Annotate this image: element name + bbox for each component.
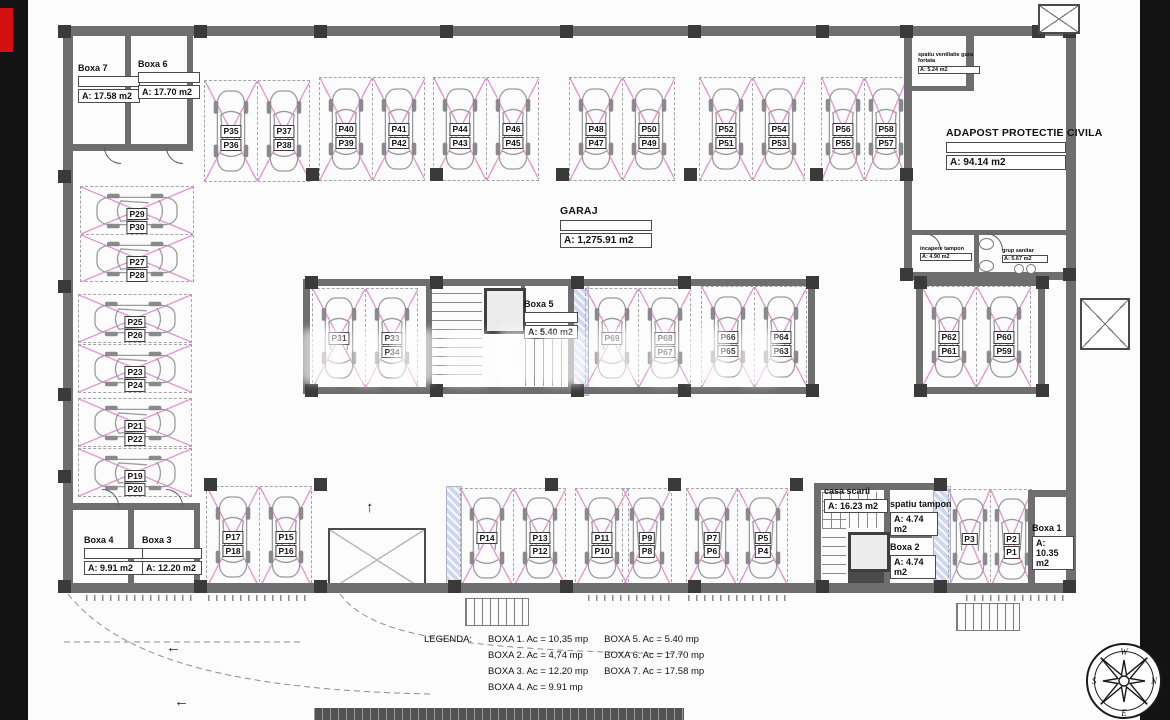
stall-label: P66P65 <box>717 331 738 357</box>
column <box>314 25 327 38</box>
column <box>678 276 691 289</box>
parking-stall-p7-p6: P7P6 <box>687 489 737 586</box>
door-arc <box>166 147 183 164</box>
stall-number: P9 <box>639 532 655 545</box>
parking-stall-p15-p16: P15P16 <box>259 487 312 587</box>
parking-stall-group: P19P20 <box>78 448 192 497</box>
stall-number: P53 <box>768 137 789 150</box>
parking-stall-p52-p51: P52P51 <box>700 78 752 180</box>
stall-number: P38 <box>273 139 294 152</box>
column <box>900 168 913 181</box>
stall-label: P33P34 <box>381 332 402 358</box>
direction-arrow-icon: ← <box>166 640 181 655</box>
wall <box>303 387 815 394</box>
column <box>914 276 927 289</box>
stall-label: P27P28 <box>126 256 147 282</box>
stall-number: P54 <box>768 123 789 136</box>
parking-stall-p44-p43: P44P43 <box>434 78 486 180</box>
stall-number: P69 <box>601 332 622 345</box>
stall-number: P30 <box>126 221 147 234</box>
stall-label: P14 <box>476 532 497 545</box>
column <box>58 25 71 38</box>
room-title: incapere tampon <box>920 246 972 252</box>
legend-item: BOXA 2. Ac = 4,74 mp <box>488 650 588 661</box>
stall-number: P59 <box>993 345 1014 358</box>
stall-number: P2 <box>1003 533 1019 546</box>
stall-number: P45 <box>502 137 523 150</box>
column <box>1063 580 1076 593</box>
parking-stall-p50-p49: P50P49 <box>622 78 675 180</box>
legend: LEGENDA: BOXA 1. Ac = 10,35 mpBOXA 2. Ac… <box>424 634 704 698</box>
room-label-boxa-3: Boxa 3A: 12.20 m2 <box>142 536 202 575</box>
parking-stall-p69: P69 <box>586 289 638 387</box>
stall-number: P3 <box>961 533 977 546</box>
parking-stall-p60-p59: P60P59 <box>976 287 1031 387</box>
parking-stall-p46-p45: P46P45 <box>486 78 539 180</box>
stall-number: P40 <box>335 123 356 136</box>
stall-label: P3 <box>961 533 977 546</box>
stall-label: P11P10 <box>591 532 612 558</box>
stall-label: P62P61 <box>938 331 959 357</box>
room-title: Boxa 6 <box>138 60 200 70</box>
stall-label: P46P45 <box>502 123 523 149</box>
column <box>684 168 697 181</box>
column <box>806 276 819 289</box>
stall-number: P56 <box>832 123 853 136</box>
parking-stall-p64-p63: P64P63 <box>754 287 807 387</box>
stall-number: P57 <box>875 137 896 150</box>
column <box>440 25 453 38</box>
column <box>58 388 71 401</box>
parking-stall-group: P31P33P34 <box>312 288 418 388</box>
stair-treads <box>525 338 567 386</box>
column <box>571 384 584 397</box>
name-box <box>946 142 1066 153</box>
floorplan-screenshot: ↑←←P35P36P37P38P40P39P41P42P44P43P46P45P… <box>0 0 1170 720</box>
column <box>314 478 327 491</box>
parking-stall-p23-p24: P23P24 <box>79 345 191 392</box>
stall-number: P46 <box>502 123 523 136</box>
parking-stall-group: P44P43P46P45 <box>433 77 539 181</box>
compass-letter-bottom: E <box>1120 708 1127 718</box>
name-box <box>78 76 140 87</box>
hatch-marks <box>688 595 788 601</box>
room-area: A: 12.20 m2 <box>142 561 202 575</box>
elevator <box>848 532 890 572</box>
wall <box>974 232 979 276</box>
stall-number: P16 <box>275 545 296 558</box>
room-label-garaj: GARAJA: 1,275.91 m2 <box>560 206 652 248</box>
room-title: Boxa 7 <box>78 64 140 74</box>
room-title: Boxa 3 <box>142 536 202 546</box>
stall-number: P6 <box>704 545 720 558</box>
stall-number: P22 <box>124 433 145 446</box>
stall-number: P62 <box>938 331 959 344</box>
column <box>688 25 701 38</box>
stall-label: P56P55 <box>832 123 853 149</box>
room-title: spatiu ventilatie gura fortata <box>918 52 980 65</box>
stall-label: P9P8 <box>639 532 655 558</box>
stall-number: P44 <box>449 123 470 136</box>
column <box>934 478 947 491</box>
parking-stall-p66-p65: P66P65 <box>702 287 754 387</box>
direction-arrow-icon: ↑ <box>366 500 374 515</box>
legend-item: BOXA 6. Ac = 17.70 mp <box>604 650 704 661</box>
column <box>448 580 461 593</box>
toilet-icon <box>1026 264 1036 274</box>
legend-title: LEGENDA: <box>424 634 472 698</box>
parking-stall-p29-p30: P29P30 <box>81 187 193 234</box>
stall-number: P26 <box>124 329 145 342</box>
stall-number: P68 <box>654 332 675 345</box>
parking-stall-p54-p53: P54P53 <box>752 78 805 180</box>
stall-number: P12 <box>529 545 550 558</box>
direction-arrow-icon: ← <box>174 694 189 709</box>
room-label-boxa-1: Boxa 1A: 10.35 m2 <box>1032 524 1074 570</box>
wall <box>303 279 815 286</box>
column <box>678 384 691 397</box>
parking-stall-group: P48P47P50P49 <box>569 77 675 181</box>
stall-number: P33 <box>381 332 402 345</box>
parking-stall-p27-p28: P27P28 <box>81 234 193 282</box>
legend-item: BOXA 5. Ac = 5.40 mp <box>604 634 704 645</box>
stall-number: P17 <box>222 531 243 544</box>
parking-stall-p2-p1: P2P1 <box>990 490 1032 587</box>
wall <box>808 279 815 394</box>
legend-item: BOXA 7. Ac = 17.58 mp <box>604 666 704 677</box>
column <box>668 478 681 491</box>
parking-stall-group: P66P65P64P63 <box>701 286 807 388</box>
stall-number: P25 <box>124 316 145 329</box>
stall-number: P48 <box>585 123 606 136</box>
parking-stall-group: P11P10 <box>575 488 629 587</box>
room-title: Boxa 2 <box>890 543 936 553</box>
parking-stall-group: P3P2P1 <box>948 489 1032 588</box>
door-arc <box>104 147 121 164</box>
parking-stall-p40-p39: P40P39 <box>320 78 372 180</box>
legend-item: BOXA 3. Ac = 12.20 mp <box>488 666 588 677</box>
room-label-incapere-tampon: incapere tamponA: 4.90 m2 <box>920 246 972 261</box>
column <box>900 25 913 38</box>
floorplan-sheet: ↑←←P35P36P37P38P40P39P41P42P44P43P46P45P… <box>28 0 1140 720</box>
legend-column-2: BOXA 5. Ac = 5.40 mpBOXA 6. Ac = 17.70 m… <box>604 634 704 698</box>
parking-stall-p48-p47: P48P47 <box>570 78 622 180</box>
stall-label: P13P12 <box>529 532 550 558</box>
column <box>194 25 207 38</box>
stall-label: P60P59 <box>993 331 1014 357</box>
room-label-casa-scarii: casa scariiA: 16.23 m2 <box>824 487 888 513</box>
stall-number: P31 <box>328 332 349 345</box>
column <box>314 580 327 593</box>
wall <box>1038 279 1045 394</box>
hatch-marks <box>86 595 198 601</box>
room-area: A: 5.67 m2 <box>1002 255 1048 263</box>
column <box>816 25 829 38</box>
column <box>1063 268 1076 281</box>
stall-number: P4 <box>755 545 771 558</box>
stall-number: P13 <box>529 532 550 545</box>
room-area: A: 5.40 m2 <box>524 325 578 339</box>
wall <box>904 86 974 91</box>
column <box>430 168 443 181</box>
hatch-marks <box>588 595 672 601</box>
stall-number: P47 <box>585 137 606 150</box>
toilet-icon <box>979 238 994 250</box>
stall-number: P5 <box>755 532 771 545</box>
name-box <box>138 72 200 83</box>
stall-number: P23 <box>124 366 145 379</box>
stall-label: P64P63 <box>770 331 791 357</box>
stall-number: P24 <box>124 379 145 392</box>
legend-item: BOXA 4. Ac = 9.91 mp <box>488 682 588 693</box>
stall-number: P14 <box>476 532 497 545</box>
column <box>306 168 319 181</box>
room-title: ADAPOST PROTECTIE CIVILA <box>946 128 1066 140</box>
wall <box>303 279 310 394</box>
wall <box>904 36 912 280</box>
room-title: spatiu tampon <box>890 500 938 510</box>
stall-label: P52P51 <box>715 123 736 149</box>
column <box>556 168 569 181</box>
room-area: A: 1,275.91 m2 <box>560 233 652 248</box>
parking-stall-p58-p57: P58P57 <box>864 78 907 180</box>
red-accent-badge <box>0 8 13 52</box>
room-area: A: 16.23 m2 <box>824 499 888 513</box>
wall <box>1028 490 1074 497</box>
column <box>204 478 217 491</box>
wall <box>814 483 821 593</box>
parking-stall-p37-p38: P37P38 <box>257 81 310 181</box>
column <box>914 384 927 397</box>
stall-number: P41 <box>388 123 409 136</box>
column <box>430 384 443 397</box>
room-label-boxa-7: Boxa 7A: 17.58 m2 <box>78 64 140 103</box>
exterior-stairs <box>956 603 1020 631</box>
column <box>58 470 71 483</box>
parking-stall-group: P7P6P5P4 <box>686 488 788 587</box>
stall-number: P42 <box>388 137 409 150</box>
stall-number: P63 <box>770 345 791 358</box>
parking-stall-p25-p26: P25P26 <box>79 295 191 342</box>
column <box>560 25 573 38</box>
compass-rose-icon: W N E S <box>1084 641 1164 720</box>
column <box>58 280 71 293</box>
stall-number: P37 <box>273 125 294 138</box>
column <box>1036 384 1049 397</box>
room-label-boxa-6: Boxa 6A: 17.70 m2 <box>138 60 200 99</box>
stall-number: P19 <box>124 470 145 483</box>
stall-number: P35 <box>220 125 241 138</box>
column <box>560 580 573 593</box>
parking-stall-group: P29P30P27P28 <box>80 186 194 282</box>
room-title: Boxa 1 <box>1032 524 1074 534</box>
compass-letter-right: N <box>1150 676 1158 686</box>
column <box>194 580 207 593</box>
stall-number: P20 <box>124 483 145 496</box>
parking-stall-group: P25P26 <box>78 294 192 343</box>
name-box <box>84 548 144 559</box>
column <box>305 276 318 289</box>
column <box>571 276 584 289</box>
toilet-icon <box>1014 264 1024 274</box>
stall-number: P60 <box>993 331 1014 344</box>
room-area: A: 5.24 m2 <box>918 66 980 74</box>
room-title: Boxa 5 <box>524 300 578 310</box>
stall-number: P66 <box>717 331 738 344</box>
room-area: A: 9.91 m2 <box>84 561 144 575</box>
stall-label: P35P36 <box>220 125 241 151</box>
stall-label: P58P57 <box>875 123 896 149</box>
room-label-spatiu-tampon: spatiu tamponA: 4.74 m2 <box>890 500 938 536</box>
parking-stall-p31: P31 <box>313 289 365 387</box>
parking-stall-group: P56P55P58P57 <box>821 77 907 181</box>
room-title: grup sanitar <box>1002 248 1048 254</box>
column <box>934 580 947 593</box>
stall-number: P51 <box>715 137 736 150</box>
name-box <box>524 312 578 323</box>
stall-label: P69 <box>601 332 622 345</box>
parking-stall-group: P21P22 <box>78 398 192 447</box>
stall-number: P27 <box>126 256 147 269</box>
stall-number: P34 <box>381 346 402 359</box>
room-area: A: 17.58 m2 <box>78 89 140 103</box>
parking-stall-p21-p22: P21P22 <box>79 399 191 446</box>
shaft <box>1038 4 1080 34</box>
stall-label: P21P22 <box>124 420 145 446</box>
parking-stall-p56-p55: P56P55 <box>822 78 864 180</box>
stall-label: P7P6 <box>704 532 720 558</box>
column <box>58 580 71 593</box>
column <box>688 580 701 593</box>
stall-number: P11 <box>592 532 613 545</box>
parking-stall-p68-p67: P68P67 <box>638 289 691 387</box>
parking-stall-p14: P14 <box>461 489 513 586</box>
stall-number: P21 <box>124 420 145 433</box>
parking-stall-p33-p34: P33P34 <box>365 289 418 387</box>
stall-number: P8 <box>639 545 655 558</box>
room-label-grup-sanitar: grup sanitarA: 5.67 m2 <box>1002 248 1048 263</box>
column <box>305 384 318 397</box>
stall-number: P58 <box>875 123 896 136</box>
stall-number: P61 <box>938 345 959 358</box>
room-area: A: 94.14 m2 <box>946 155 1066 170</box>
toilet-icon <box>979 260 994 272</box>
stall-label: P37P38 <box>273 125 294 151</box>
stall-number: P55 <box>832 137 853 150</box>
parking-stall-p17-p18: P17P18 <box>207 487 259 587</box>
room-label-adapost-protectie-civila: ADAPOST PROTECTIE CIVILAA: 94.14 m2 <box>946 128 1066 170</box>
stall-number: P52 <box>715 123 736 136</box>
parking-stall-group: P62P61P60P59 <box>921 286 1031 388</box>
shaft <box>1080 298 1130 350</box>
section-bar <box>314 708 684 720</box>
parking-stall-p41-p42: P41P42 <box>372 78 425 180</box>
column <box>545 478 558 491</box>
room-title: Boxa 4 <box>84 536 144 546</box>
elevator <box>484 288 526 334</box>
room-area: A: 4.74 m2 <box>890 512 938 536</box>
parking-stall-group: P14P13P12 <box>460 488 566 587</box>
compass-letter-left: S <box>1092 676 1097 686</box>
stall-label: P23P24 <box>124 366 145 392</box>
room-area: A: 17.70 m2 <box>138 85 200 99</box>
room-area: A: 4.74 m2 <box>890 555 936 579</box>
wall <box>916 279 923 394</box>
room-title: GARAJ <box>560 206 652 218</box>
room-area: A: 4.90 m2 <box>920 253 972 261</box>
stall-label: P54P53 <box>768 123 789 149</box>
stall-number: P1 <box>1003 546 1019 559</box>
stall-number: P7 <box>704 532 720 545</box>
stall-number: P64 <box>770 331 791 344</box>
stall-number: P43 <box>449 137 470 150</box>
parking-stall-p3: P3 <box>949 490 990 587</box>
stall-number: P10 <box>591 545 612 558</box>
parking-stall-group: P35P36P37P38 <box>204 80 310 182</box>
parking-stall-p13-p12: P13P12 <box>513 489 566 586</box>
column <box>810 168 823 181</box>
stall-number: P15 <box>275 531 296 544</box>
stall-number: P29 <box>126 208 147 221</box>
parking-stall-group: P52P51P54P53 <box>699 77 805 181</box>
parking-stall-p9-p8: P9P8 <box>623 489 671 586</box>
room-area: A: 10.35 m2 <box>1032 536 1074 570</box>
wall <box>1066 26 1076 593</box>
stall-label: P5P4 <box>755 532 771 558</box>
column <box>58 170 71 183</box>
parking-stall-group: P9P8 <box>622 488 672 587</box>
wall <box>426 281 432 391</box>
wall <box>916 279 1045 286</box>
room-label-boxa-5: Boxa 5A: 5.40 m2 <box>524 300 578 339</box>
stall-number: P67 <box>654 346 675 359</box>
parking-stall-group: P23P24 <box>78 344 192 393</box>
stall-number: P65 <box>717 345 738 358</box>
parking-stall-p62-p61: P62P61 <box>922 287 976 387</box>
stall-label: P29P30 <box>126 208 147 234</box>
stall-number: P36 <box>220 139 241 152</box>
column <box>816 580 829 593</box>
stall-label: P41P42 <box>388 123 409 149</box>
stall-label: P40P39 <box>335 123 356 149</box>
name-box <box>142 548 202 559</box>
stall-label: P31 <box>328 332 349 345</box>
parking-stall-p11-p10: P11P10 <box>576 489 628 586</box>
parking-stall-p5-p4: P5P4 <box>737 489 788 586</box>
stall-number: P18 <box>222 545 243 558</box>
stall-label: P48P47 <box>585 123 606 149</box>
stall-label: P25P26 <box>124 316 145 342</box>
stall-number: P39 <box>335 137 356 150</box>
stall-label: P15P16 <box>275 531 296 557</box>
stall-label: P19P20 <box>124 470 145 496</box>
parking-stall-group: P40P39P41P42 <box>319 77 425 181</box>
stall-label: P44P43 <box>449 123 470 149</box>
column <box>1036 276 1049 289</box>
parking-stall-group: P17P18P15P16 <box>206 486 312 588</box>
stall-label: P17P18 <box>222 531 243 557</box>
stall-number: P49 <box>638 137 659 150</box>
legend-column-1: BOXA 1. Ac = 10,35 mpBOXA 2. Ac = 4,74 m… <box>488 634 588 698</box>
name-box <box>560 220 652 231</box>
stall-label: P68P67 <box>654 332 675 358</box>
column <box>806 384 819 397</box>
hatch-marks <box>966 595 1066 601</box>
room-label-boxa-4: Boxa 4A: 9.91 m2 <box>84 536 144 575</box>
room-label-spatiu-ventilatie: spatiu ventilatie gura fortataA: 5.24 m2 <box>918 52 980 74</box>
parking-stall-p35-p36: P35P36 <box>205 81 257 181</box>
column <box>430 276 443 289</box>
